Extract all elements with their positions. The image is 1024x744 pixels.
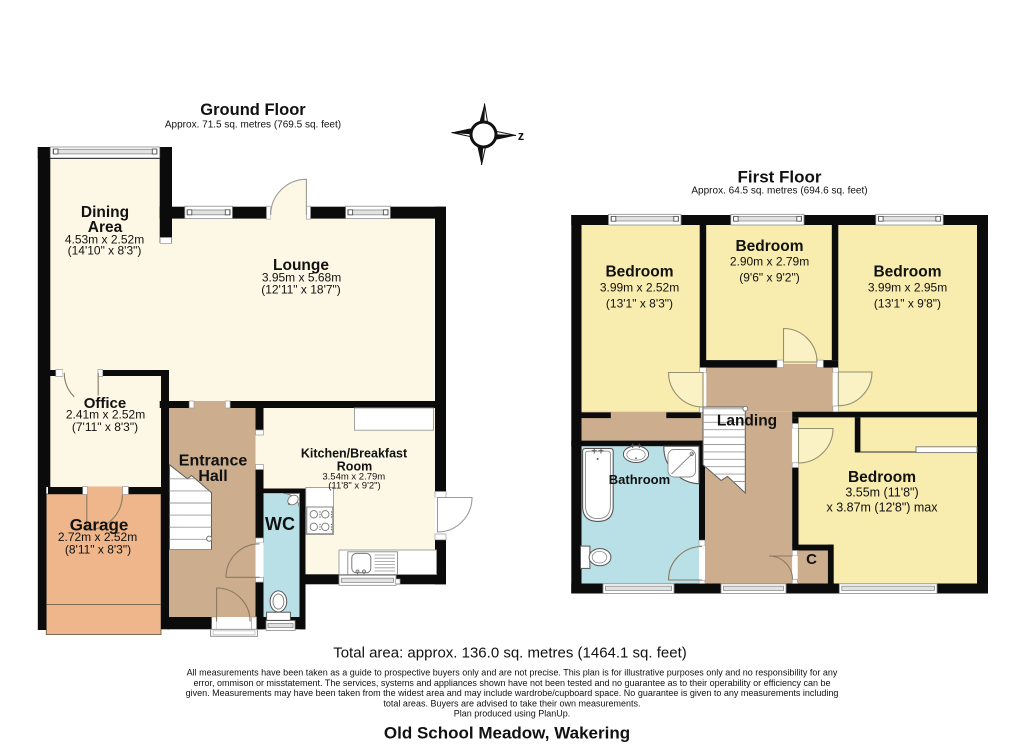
svg-text:Hall: Hall <box>198 468 227 485</box>
svg-text:Entrance: Entrance <box>179 453 248 470</box>
svg-text:(8'11" x 8'3"): (8'11" x 8'3") <box>65 543 131 557</box>
svg-text:Bedroom: Bedroom <box>735 238 803 255</box>
svg-text:(13'1" x 9'8"): (13'1" x 9'8") <box>874 297 941 311</box>
svg-text:All measurements have been tak: All measurements have been taken as a gu… <box>187 668 838 678</box>
svg-text:(11'8" x 9'2"): (11'8" x 9'2") <box>328 481 380 492</box>
svg-text:First Floor: First Floor <box>737 168 821 187</box>
svg-text:3.99m x 2.52m: 3.99m x 2.52m <box>600 281 679 295</box>
svg-text:Bathroom: Bathroom <box>609 472 670 487</box>
svg-text:Total area: approx. 136.0 sq.: Total area: approx. 136.0 sq. metres (14… <box>333 645 687 662</box>
svg-text:x 3.87m (12'8") max: x 3.87m (12'8") max <box>826 501 938 515</box>
svg-text:Bedroom: Bedroom <box>848 469 916 486</box>
svg-text:(14'10" x 8'3"): (14'10" x 8'3") <box>68 244 142 258</box>
svg-text:z: z <box>518 129 524 143</box>
svg-text:(13'1" x 8'3"): (13'1" x 8'3") <box>606 297 673 311</box>
svg-text:total areas. Buyers are advise: total areas. Buyers are advised to take … <box>383 698 640 708</box>
svg-text:C: C <box>806 551 817 568</box>
svg-text:Landing: Landing <box>717 412 777 429</box>
svg-text:Ground Floor: Ground Floor <box>200 101 306 119</box>
svg-text:given. Measurements may have b: given. Measurements may have been taken … <box>186 688 839 698</box>
svg-text:Old School Meadow, Wakering: Old School Meadow, Wakering <box>384 724 630 743</box>
svg-text:Approx. 64.5 sq. metres (694.6: Approx. 64.5 sq. metres (694.6 sq. feet) <box>691 186 867 197</box>
svg-text:WC: WC <box>265 514 295 534</box>
svg-text:2.90m x 2.79m: 2.90m x 2.79m <box>730 255 809 269</box>
svg-text:Approx. 71.5 sq. metres (769.5: Approx. 71.5 sq. metres (769.5 sq. feet) <box>165 120 341 131</box>
svg-text:Bedroom: Bedroom <box>873 264 941 281</box>
svg-text:3.99m x 2.95m: 3.99m x 2.95m <box>868 281 947 295</box>
svg-text:(7'11" x 8'3"): (7'11" x 8'3") <box>72 420 138 434</box>
svg-text:error, ommison or misstatement: error, ommison or misstatement. The serv… <box>193 678 830 688</box>
svg-text:Bedroom: Bedroom <box>605 264 673 281</box>
svg-text:(9'6" x 9'2"): (9'6" x 9'2") <box>739 271 799 285</box>
svg-text:3.55m (11'8"): 3.55m (11'8") <box>845 486 918 500</box>
svg-text:(12'11" x 18'7"): (12'11" x 18'7") <box>261 283 341 297</box>
svg-text:Kitchen/Breakfast: Kitchen/Breakfast <box>301 447 408 461</box>
svg-text:Plan produced using PlanUp.: Plan produced using PlanUp. <box>454 709 571 719</box>
